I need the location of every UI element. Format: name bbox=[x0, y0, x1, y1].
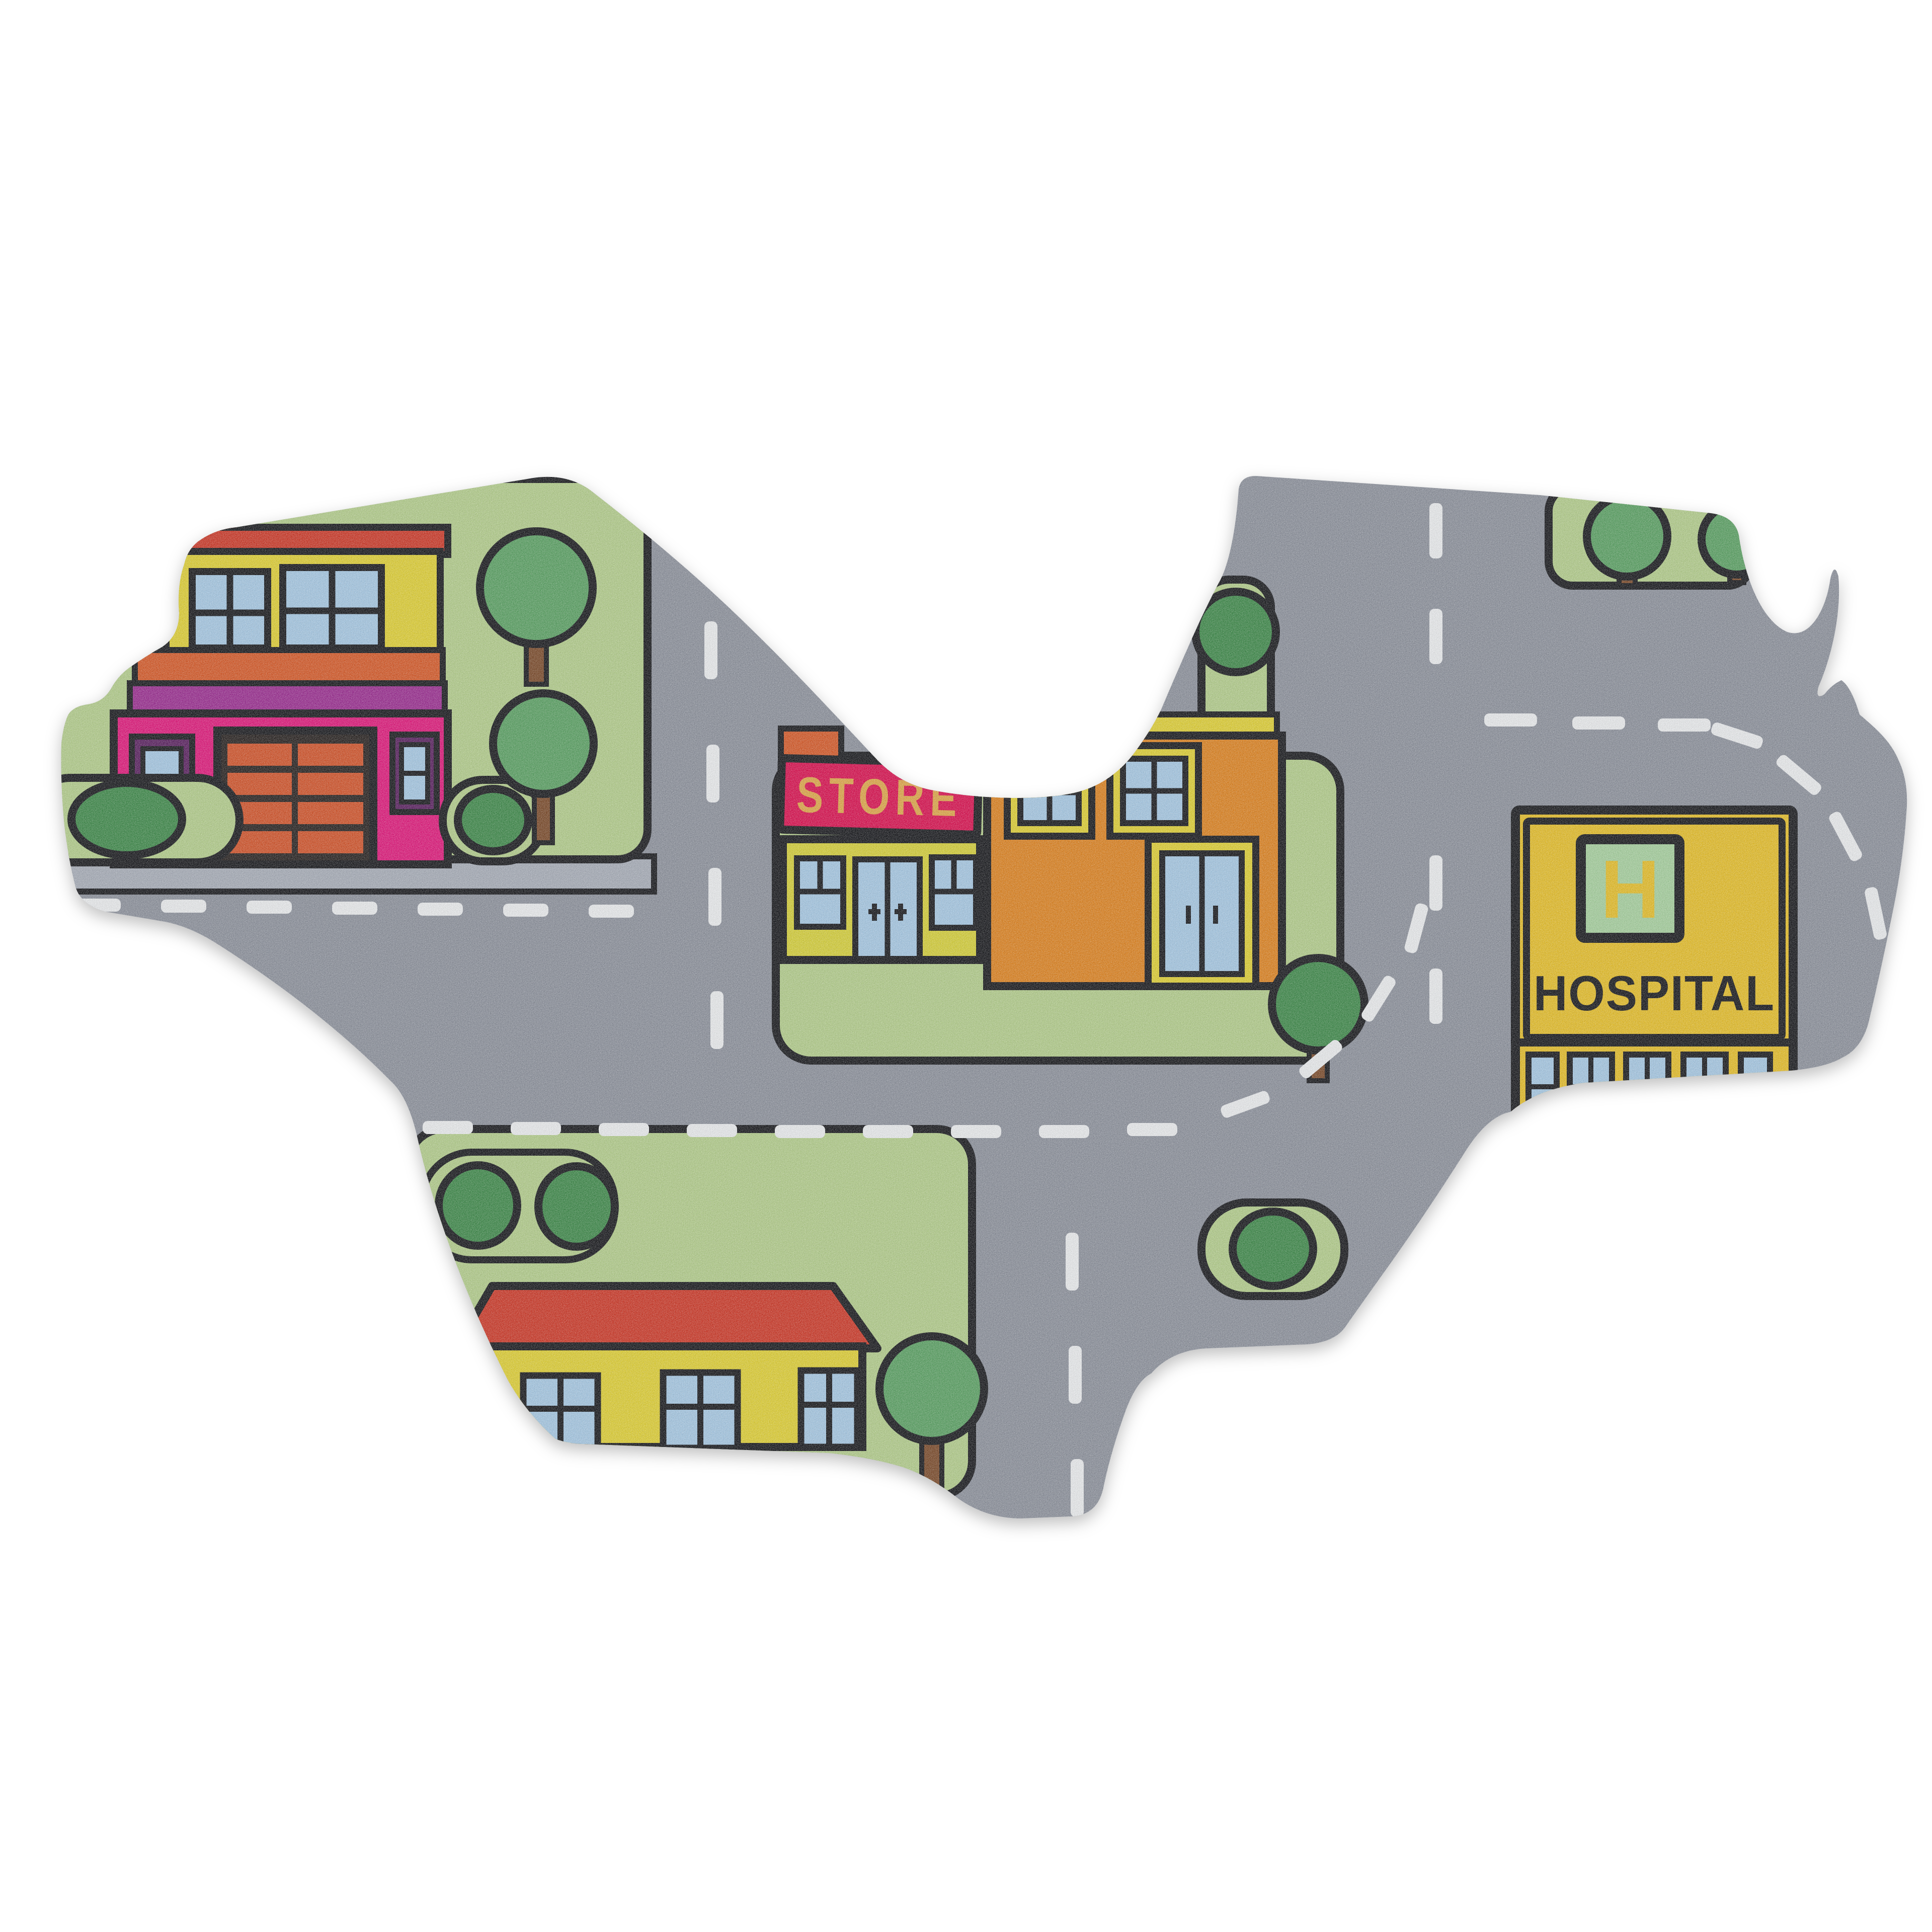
rug-illustration: STORE bbox=[0, 0, 1932, 1932]
rug-body: STORE bbox=[0, 453, 1932, 1560]
play-rug-photo: STORE bbox=[0, 0, 1932, 1932]
road-dash bbox=[1880, 968, 1895, 1021]
carpet-texture-dark bbox=[0, 453, 1932, 1560]
